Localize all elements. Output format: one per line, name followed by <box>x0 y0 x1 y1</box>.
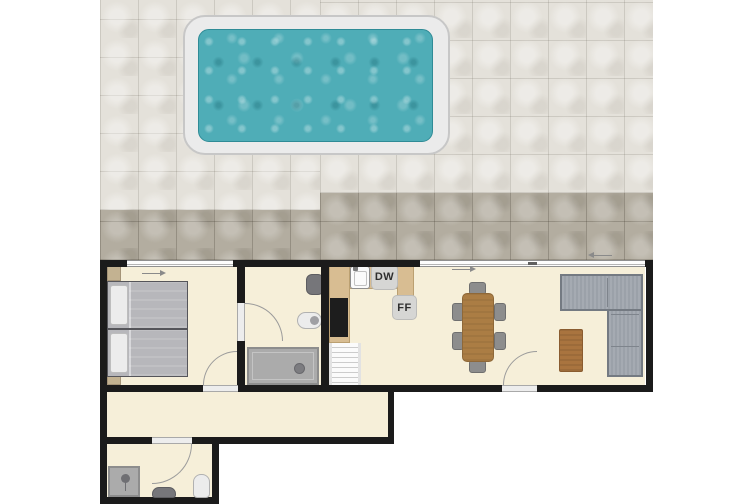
bed-blanket <box>129 282 187 328</box>
bedroom-door-threshold <box>203 385 238 392</box>
wall-bedroom-bathroom-a <box>237 267 245 303</box>
bed-2 <box>107 329 188 377</box>
dishwasher-tile: DW <box>371 264 398 290</box>
wall-bathroom-kitchen <box>321 267 329 385</box>
wall-left <box>100 260 107 504</box>
wc-washbasin-icon <box>152 487 176 498</box>
floor-plan: DW FF <box>0 0 755 504</box>
window-glass-line <box>127 264 233 265</box>
wall-hallway-a <box>100 437 152 444</box>
cooktop-icon <box>330 298 348 337</box>
fridge-freezer-tile: FF <box>392 295 417 320</box>
sliding-door-outer-arrow-icon <box>588 251 612 259</box>
coffee-table <box>559 329 583 372</box>
wall-right <box>646 260 653 392</box>
dishwasher-label: DW <box>375 271 394 283</box>
bed-1 <box>107 281 188 329</box>
wall-top-a <box>100 260 127 267</box>
nightstand-top <box>107 266 121 281</box>
wall-bottom-c <box>537 385 653 392</box>
swimming-pool <box>198 29 433 142</box>
dining-chair-right-1 <box>494 303 506 321</box>
wall-wc-bottom <box>100 497 212 504</box>
corner-sofa-top-section <box>560 274 643 311</box>
wc-toilet-icon <box>193 474 210 498</box>
shower-head-icon <box>121 474 130 483</box>
wall-top-b <box>233 260 420 267</box>
wall-hallway-b <box>192 437 394 444</box>
hallway-floor <box>107 392 388 437</box>
sofa-cushion-seam <box>611 346 639 347</box>
basin-tap-icon <box>310 316 319 325</box>
wc-shower <box>108 466 140 497</box>
staircase <box>329 343 361 385</box>
kitchen-sink-icon <box>350 266 370 289</box>
shower-drain-icon <box>294 363 305 374</box>
wall-step <box>388 392 394 437</box>
wall-bottom-b <box>238 385 502 392</box>
patio-dark-tiles-left <box>100 210 320 260</box>
bed-pillow <box>110 333 128 373</box>
fridge-freezer-label: FF <box>397 302 411 314</box>
washbasin-icon <box>297 312 322 329</box>
wall-bottom-a <box>100 385 203 392</box>
bathroom-door-threshold <box>237 303 245 341</box>
wc-door-threshold <box>152 437 192 444</box>
sliding-door-stile <box>528 262 537 265</box>
sofa-cushion-seam <box>607 278 608 307</box>
wall-bedroom-bathroom-b <box>237 341 245 385</box>
bathroom-shower <box>247 347 319 385</box>
bed-pillow <box>110 285 128 325</box>
wall-wc-right <box>212 437 219 504</box>
sliding-door-inner-arrow-icon <box>452 265 476 273</box>
bed-blanket <box>129 330 187 376</box>
bedroom-window <box>127 260 233 267</box>
dining-table <box>462 293 494 362</box>
patio-dark-tiles-right <box>320 193 653 260</box>
living-door-threshold <box>502 385 537 392</box>
sofa-cushion-seam <box>611 314 639 315</box>
bedroom-window-arrow-icon <box>142 269 166 277</box>
dining-chair-right-2 <box>494 332 506 350</box>
